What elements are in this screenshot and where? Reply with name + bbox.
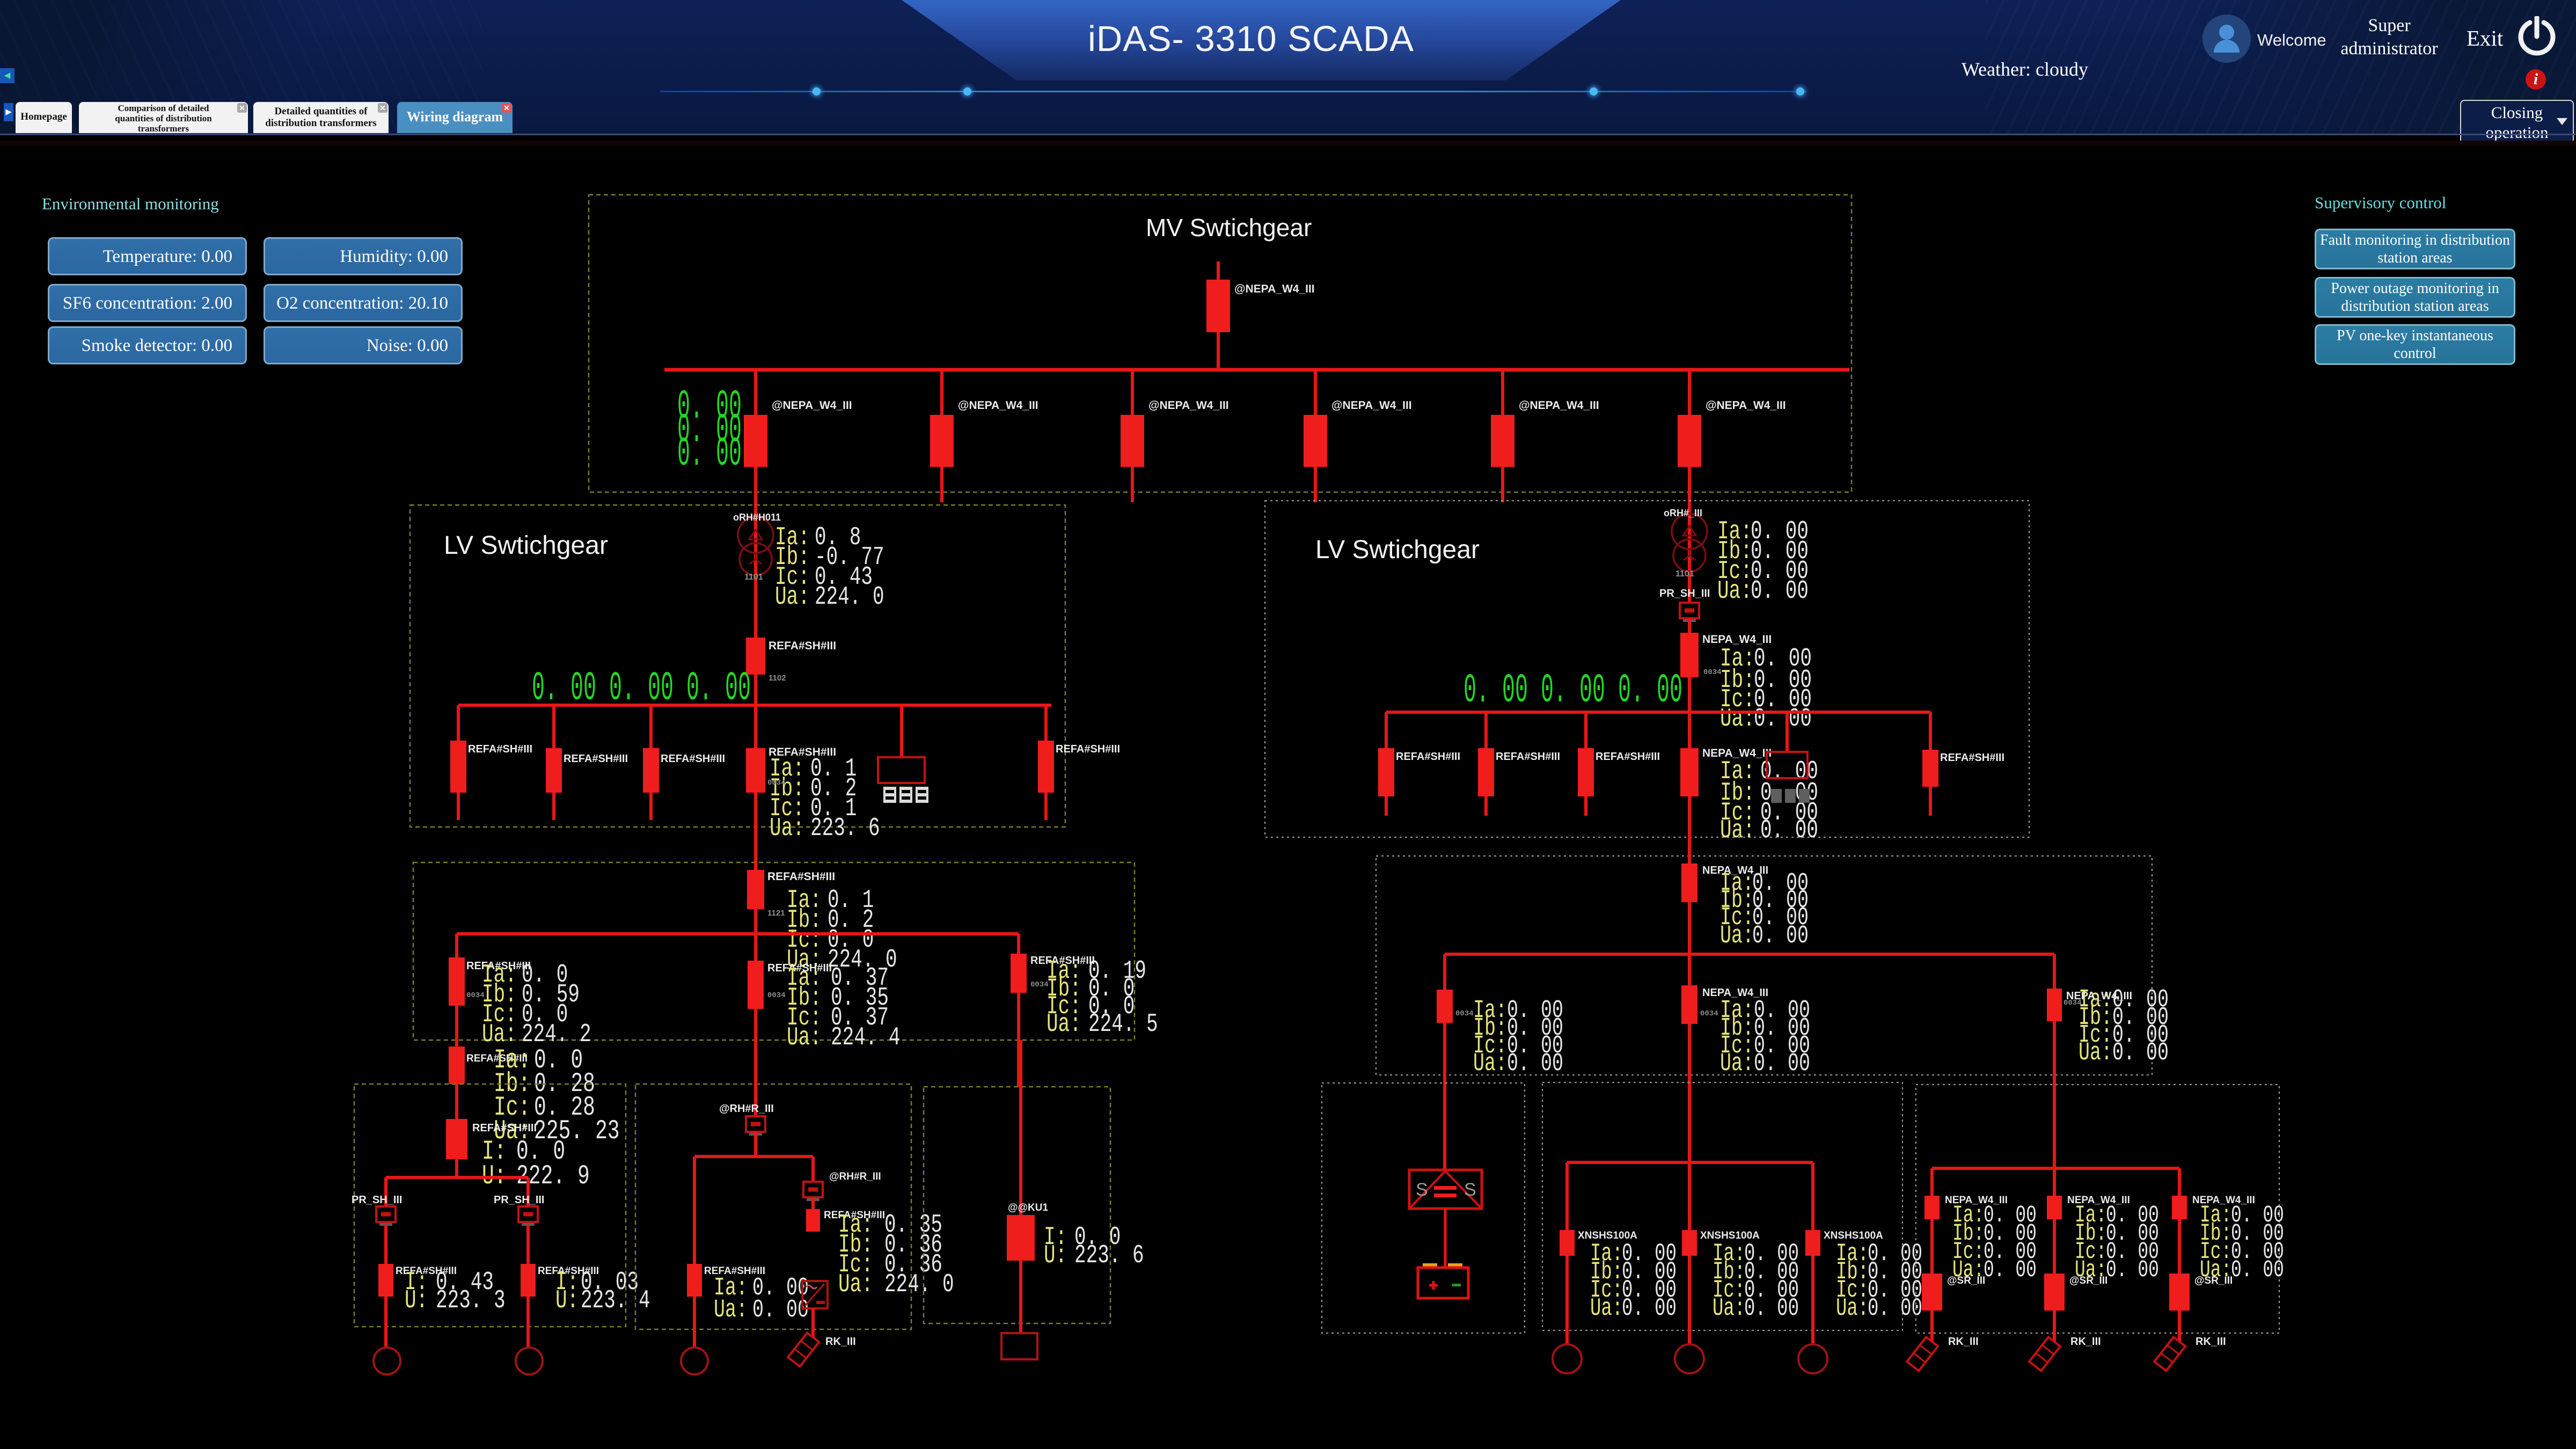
- svg-text:0. 00: 0. 00: [1507, 1049, 1563, 1078]
- svg-text:Ua:: Ua:: [1836, 1294, 1869, 1322]
- svg-text:@NEPA_W4_III: @NEPA_W4_III: [1519, 399, 1599, 412]
- svg-text:1101: 1101: [1675, 569, 1694, 579]
- svg-text:@NEPA_W4_III: @NEPA_W4_III: [1148, 399, 1229, 412]
- svg-text:REFA#SH#III: REFA#SH#III: [1496, 751, 1560, 763]
- svg-text:REFA#SH#III: REFA#SH#III: [468, 743, 532, 755]
- svg-text:@SR_III: @SR_III: [1947, 1275, 1985, 1286]
- svg-text:224. 4: 224. 4: [831, 1022, 901, 1052]
- svg-text:Ua:: Ua:: [1720, 1049, 1754, 1078]
- svg-text:REFA#SH#III: REFA#SH#III: [1056, 743, 1120, 755]
- svg-text:REFA#SH#III: REFA#SH#III: [1940, 752, 2004, 764]
- svg-text:Ua:: Ua:: [1717, 576, 1752, 606]
- svg-text:223. 6: 223. 6: [1074, 1240, 1144, 1270]
- svg-text:RK_III: RK_III: [1948, 1336, 1979, 1348]
- svg-text:@SR_III: @SR_III: [2069, 1275, 2107, 1286]
- svg-text:RK_III: RK_III: [2196, 1336, 2226, 1348]
- svg-text:@SR_III: @SR_III: [2194, 1275, 2233, 1286]
- svg-text:0. 00: 0. 00: [1984, 1256, 2037, 1283]
- svg-text:REFA#SH#III: REFA#SH#III: [767, 870, 835, 883]
- svg-text:oRH#_III: oRH#_III: [1664, 508, 1702, 518]
- svg-text:@NEPA_W4_III: @NEPA_W4_III: [958, 399, 1038, 412]
- svg-text:Ua:: Ua:: [1046, 1009, 1081, 1039]
- svg-text:0034: 0034: [466, 991, 485, 1000]
- svg-text:Ua:: Ua:: [1720, 921, 1754, 950]
- svg-text:Ua:: Ua:: [1473, 1049, 1507, 1078]
- svg-text:@RH#R_III: @RH#R_III: [719, 1103, 774, 1115]
- svg-text:Ua:: Ua:: [1720, 815, 1755, 845]
- svg-text:0. 00: 0. 00: [2231, 1256, 2284, 1283]
- svg-text:REFA#SH#III: REFA#SH#III: [563, 753, 628, 765]
- svg-text:@RH#R_III: @RH#R_III: [829, 1171, 881, 1182]
- svg-text:0034: 0034: [1700, 1009, 1718, 1018]
- svg-text:Ua:: Ua:: [775, 582, 810, 612]
- svg-text:U:: U:: [1044, 1240, 1067, 1270]
- svg-text:0034: 0034: [1455, 1009, 1474, 1018]
- svg-text:PR_SH_III: PR_SH_III: [1659, 588, 1710, 599]
- svg-text:0. 00: 0. 00: [2112, 1038, 2169, 1067]
- svg-text:Ua:: Ua:: [1720, 704, 1755, 734]
- svg-text:REFA#SH#III: REFA#SH#III: [769, 640, 836, 652]
- svg-text:0034: 0034: [2063, 999, 2082, 1007]
- svg-text:Ua:: Ua:: [787, 1022, 822, 1052]
- svg-text:REFA#SH#III: REFA#SH#III: [472, 1122, 537, 1134]
- svg-text:Ua:: Ua:: [1590, 1294, 1623, 1322]
- svg-text:Ua:: Ua:: [2079, 1038, 2112, 1067]
- svg-text:0034: 0034: [767, 991, 786, 1000]
- svg-text:Ua:: Ua:: [838, 1269, 873, 1299]
- svg-text:RK_III: RK_III: [825, 1336, 856, 1348]
- svg-text:224. 0: 224. 0: [884, 1269, 954, 1299]
- svg-text:REFA#SH#III: REFA#SH#III: [661, 753, 725, 765]
- svg-text:0034: 0034: [1030, 980, 1049, 989]
- svg-text:0. 00: 0. 00: [752, 1296, 809, 1324]
- svg-text:RK_III: RK_III: [2070, 1336, 2101, 1348]
- svg-text:1121: 1121: [767, 909, 785, 918]
- svg-text:1101: 1101: [744, 573, 763, 582]
- svg-text:0. 00: 0. 00: [1622, 1294, 1677, 1322]
- svg-text:0. 00: 0. 00: [1754, 1049, 1810, 1078]
- svg-text:Ua:: Ua:: [714, 1296, 748, 1324]
- svg-text:@NEPA_W4_III: @NEPA_W4_III: [1234, 283, 1315, 295]
- svg-text:224. 5: 224. 5: [1088, 1009, 1158, 1039]
- svg-text:224. 0: 224. 0: [815, 582, 884, 612]
- svg-text:LV Swtichgear: LV Swtichgear: [444, 531, 608, 560]
- svg-text:@NEPA_W4_III: @NEPA_W4_III: [1706, 399, 1786, 412]
- svg-text:PR_SH_III: PR_SH_III: [494, 1194, 544, 1206]
- svg-text:223. 4: 223. 4: [581, 1285, 650, 1315]
- svg-text:223. 3: 223. 3: [436, 1285, 506, 1315]
- svg-text:REFA#SH#III: REFA#SH#III: [1596, 751, 1660, 763]
- svg-text:PR_SH_III: PR_SH_III: [352, 1194, 402, 1206]
- svg-text:@NEPA_W4_III: @NEPA_W4_III: [1331, 399, 1412, 412]
- svg-text:0. 00: 0. 00: [1751, 576, 1809, 606]
- svg-text:Ua:: Ua:: [1713, 1294, 1745, 1322]
- svg-text:U:: U:: [405, 1285, 428, 1315]
- svg-text:0. 00: 0. 00: [677, 431, 742, 477]
- svg-text:LV Swtichgear: LV Swtichgear: [1315, 536, 1480, 564]
- svg-text:MV Swtichgear: MV Swtichgear: [1146, 214, 1312, 241]
- svg-text:0. 00 0. 00 0. 00: 0. 00 0. 00 0. 00: [1463, 668, 1682, 714]
- svg-text:1102: 1102: [769, 674, 786, 683]
- svg-text:0034: 0034: [1703, 668, 1722, 677]
- svg-text:0. 00: 0. 00: [1760, 815, 1818, 845]
- svg-text:@NEPA_W4_III: @NEPA_W4_III: [772, 399, 852, 412]
- svg-text:S: S: [1416, 1180, 1428, 1200]
- svg-text:Ua:: Ua:: [770, 813, 804, 843]
- svg-text:U:: U:: [555, 1285, 579, 1315]
- svg-text:0. 00: 0. 00: [1868, 1294, 1922, 1322]
- svg-text:223. 6: 223. 6: [810, 813, 880, 843]
- svg-text:S: S: [1464, 1180, 1476, 1200]
- svg-text:0034: 0034: [767, 779, 786, 787]
- svg-text:0. 00: 0. 00: [1744, 1294, 1799, 1322]
- svg-text:0. 00: 0. 00: [1754, 704, 1812, 734]
- svg-text:0. 00: 0. 00: [1752, 921, 1809, 950]
- svg-text:oRH#H011: oRH#H011: [733, 512, 781, 523]
- svg-text:@@KU1: @@KU1: [1008, 1202, 1048, 1213]
- svg-text:REFA#SH#III: REFA#SH#III: [1396, 751, 1460, 763]
- svg-text:0. 00: 0. 00: [2106, 1256, 2159, 1283]
